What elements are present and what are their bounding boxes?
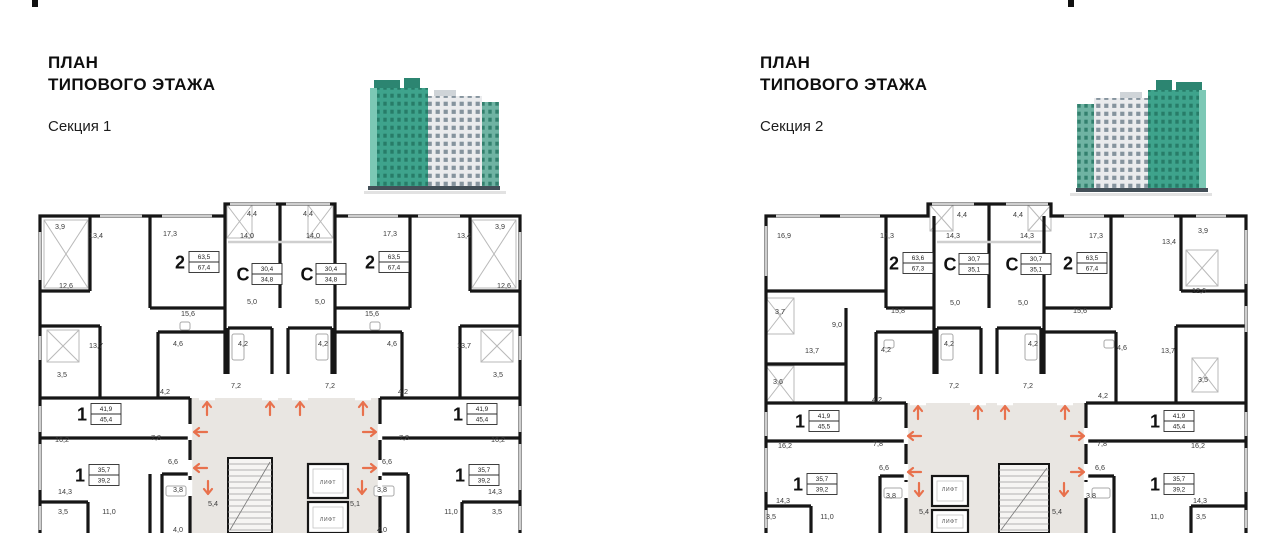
green-tower-edge <box>370 88 377 188</box>
room-area-label: 5,4 <box>919 507 929 516</box>
room-area-label: 7,2 <box>949 381 959 390</box>
room-area-label: 3,8 <box>886 491 896 500</box>
apartment-living-area: 41,9 <box>476 406 489 413</box>
corridor-core <box>190 398 380 533</box>
room-area-label: 6,6 <box>879 463 889 472</box>
room-area-label: 13,4 <box>89 231 103 240</box>
room-area-label: 13,7 <box>1161 346 1175 355</box>
apartment-total-area: 39,2 <box>1173 487 1186 494</box>
apartment-living-area: 35,7 <box>816 476 829 483</box>
room-area-label: 17,3 <box>163 229 177 238</box>
section-2-subtitle: Секция 2 <box>760 118 823 135</box>
section-1-subtitle: Секция 1 <box>48 118 111 135</box>
apartment-type: 2 <box>889 254 899 274</box>
room-area-label: 3,8 <box>377 485 387 494</box>
room-area-label: 14,3 <box>58 487 72 496</box>
room-area-label: 5,0 <box>247 297 257 306</box>
room-area-label: 3,9 <box>495 222 505 231</box>
ground-shadow <box>364 191 506 194</box>
room-area-label: 15,6 <box>365 309 379 318</box>
apartment-total-area: 39,2 <box>816 487 829 494</box>
apartment-type: С <box>237 265 250 285</box>
room-area-label: 3,5 <box>493 370 503 379</box>
room-area-label: 16,9 <box>777 231 791 240</box>
room-area-label: 15,6 <box>1073 306 1087 315</box>
room-area-label: 6,6 <box>1095 463 1105 472</box>
floor-plan-section-2: ЛИФТЛИФТ16,917,314,34,44,414,317,313,43,… <box>756 196 1256 533</box>
room-area-label: 4,2 <box>318 339 328 348</box>
room-area-label: 4,6 <box>173 339 183 348</box>
room-area-label: 3,5 <box>766 512 776 521</box>
room-area-label: 4,2 <box>1028 339 1038 348</box>
apartment-total-area: 35,1 <box>1030 267 1043 274</box>
balcony-glazing <box>766 205 1218 402</box>
section-2-title: ПЛАН ТИПОВОГО ЭТАЖА <box>760 52 927 97</box>
apartment-living-area: 30,7 <box>1030 256 1043 263</box>
apartment-living-area: 63,5 <box>1086 255 1099 262</box>
room-area-label: 7,8 <box>151 433 161 442</box>
room-area-label: 3,5 <box>58 507 68 516</box>
room-area-label: 7,2 <box>1023 381 1033 390</box>
crop-mark-right <box>1068 0 1074 7</box>
apartment-living-area: 30,4 <box>325 266 338 273</box>
apartment-badge: С30,735,1 <box>1006 254 1052 275</box>
white-tower-windows <box>1094 98 1148 190</box>
room-area-label: 6,6 <box>382 457 392 466</box>
apartment-living-area: 41,9 <box>100 406 113 413</box>
room-area-label: 12,6 <box>497 281 511 290</box>
apartment-badge: 263,667,3 <box>889 253 933 274</box>
room-area-label: 14,3 <box>488 487 502 496</box>
apartment-type: 1 <box>77 405 87 425</box>
elevator-label: ЛИФТ <box>942 519 959 525</box>
room-area-label: 13,7 <box>805 346 819 355</box>
apartment-badge: 263,567,4 <box>1063 253 1107 274</box>
apartment-badge: 141,945,4 <box>453 404 497 425</box>
teal-wing-windows <box>1077 104 1094 190</box>
room-area-label: 17,3 <box>880 231 894 240</box>
room-area-label: 13,7 <box>89 341 103 350</box>
room-area-label: 5,0 <box>315 297 325 306</box>
room-area-label: 3,6 <box>773 377 783 386</box>
apartment-total-area: 39,2 <box>98 478 111 485</box>
apartment-badge: 135,739,2 <box>455 465 499 486</box>
apartment-badge: С30,434,8 <box>237 264 283 285</box>
apartment-badge: 135,739,2 <box>1150 474 1194 495</box>
room-area-label: 5,0 <box>950 298 960 307</box>
room-area-label: 4,2 <box>1098 391 1108 400</box>
room-area-label: 4,2 <box>872 395 882 404</box>
room-area-label: 4,2 <box>881 345 891 354</box>
room-area-label: 14,0 <box>306 231 320 240</box>
room-area-label: 3,7 <box>775 307 785 316</box>
apartment-type: С <box>1006 255 1019 275</box>
apartment-badge: 141,945,4 <box>1150 411 1194 432</box>
apartment-badge: 141,945,4 <box>77 404 121 425</box>
apartment-total-area: 35,1 <box>968 267 981 274</box>
apartment-living-area: 63,6 <box>912 255 925 262</box>
green-tower-windows <box>370 88 428 188</box>
apartment-living-area: 41,9 <box>818 413 831 420</box>
room-area-label: 16,2 <box>778 441 792 450</box>
room-area-label: 5,4 <box>1052 507 1062 516</box>
apartment-badge: С30,735,1 <box>944 254 990 275</box>
apartment-living-area: 63,5 <box>198 254 211 261</box>
apartment-badge: 141,945,5 <box>795 411 839 432</box>
apartment-badge: С30,434,8 <box>301 264 347 285</box>
apartment-type: 2 <box>1063 254 1073 274</box>
staircase <box>228 458 272 533</box>
apartment-total-area: 45,4 <box>476 417 489 424</box>
apartment-total-area: 34,8 <box>261 277 274 284</box>
apartment-total-area: 34,8 <box>325 277 338 284</box>
apartment-living-area: 35,7 <box>478 467 491 474</box>
apartment-type: 1 <box>75 466 85 486</box>
room-area-label: 7,8 <box>873 439 883 448</box>
room-area-label: 4,6 <box>387 339 397 348</box>
apartment-living-area: 35,7 <box>98 467 111 474</box>
elevator-label: ЛИФТ <box>320 517 337 523</box>
room-area-label: 4,2 <box>160 387 170 396</box>
apartment-total-area: 67,4 <box>198 265 211 272</box>
room-area-label: 13,4 <box>457 231 471 240</box>
room-area-label: 11,0 <box>1150 512 1163 521</box>
apartment-type: С <box>301 265 314 285</box>
section-1-title: ПЛАН ТИПОВОГО ЭТАЖА <box>48 52 215 97</box>
room-area-label: 11,0 <box>102 507 115 516</box>
room-area-label: 14,0 <box>240 231 254 240</box>
elevator-label: ЛИФТ <box>320 480 337 486</box>
room-area-label: 7,8 <box>399 433 409 442</box>
room-area-label: 4,4 <box>1013 210 1023 219</box>
room-area-label: 9,0 <box>832 320 842 329</box>
floor-plan-section-1: ЛИФТЛИФТ3,913,417,34,414,014,04,417,313,… <box>30 196 530 533</box>
room-area-label: 4,4 <box>957 210 967 219</box>
building-render-section-1 <box>352 68 516 198</box>
apartment-badge: 263,567,4 <box>175 252 219 273</box>
room-area-label: 4,4 <box>247 209 257 218</box>
apartment-badge: 263,567,4 <box>365 252 409 273</box>
room-area-label: 4,2 <box>398 387 408 396</box>
room-area-label: 16,2 <box>55 435 69 444</box>
room-area-label: 14,3 <box>1020 231 1034 240</box>
tower-roof <box>404 78 420 88</box>
room-area-label: 14,3 <box>946 231 960 240</box>
room-area-label: 7,2 <box>325 381 335 390</box>
room-area-label: 3,5 <box>57 370 67 379</box>
room-area-label: 15,8 <box>891 306 905 315</box>
room-area-label: 3,8 <box>1086 491 1096 500</box>
room-area-label: 3,5 <box>1198 375 1208 384</box>
room-area-label: 7,2 <box>231 381 241 390</box>
apartment-total-area: 67,4 <box>388 265 401 272</box>
room-area-label: 15,6 <box>181 309 195 318</box>
room-area-label: 3,5 <box>1196 512 1206 521</box>
room-area-label: 13,4 <box>1162 237 1176 246</box>
room-area-label: 17,3 <box>1089 231 1103 240</box>
apartment-badge: 135,739,2 <box>75 465 119 486</box>
apartment-total-area: 67,4 <box>1086 266 1099 273</box>
white-tower-windows <box>428 96 482 188</box>
room-area-label: 14,3 <box>776 496 790 505</box>
room-area-label: 3,9 <box>55 222 65 231</box>
room-area-label: 4,0 <box>173 525 183 533</box>
room-area-label: 4,0 <box>377 525 387 533</box>
apartment-living-area: 30,7 <box>968 256 981 263</box>
room-area-label: 5,4 <box>208 499 218 508</box>
apartment-total-area: 67,3 <box>912 266 925 273</box>
green-tower-edge <box>1199 90 1206 190</box>
room-area-label: 5,0 <box>1018 298 1028 307</box>
room-area-label: 14,3 <box>1193 496 1207 505</box>
green-tower-windows <box>1148 90 1206 190</box>
building-render-section-2 <box>1060 70 1224 200</box>
apartment-living-area: 30,4 <box>261 266 274 273</box>
apartment-living-area: 63,5 <box>388 254 401 261</box>
apartment-type: 2 <box>365 253 375 273</box>
room-area-label: 7,8 <box>1097 439 1107 448</box>
apartment-total-area: 45,5 <box>818 424 831 431</box>
apartment-type: 1 <box>793 475 803 495</box>
apartment-total-area: 45,4 <box>100 417 113 424</box>
room-area-label: 11,0 <box>444 507 457 516</box>
apartment-type: 1 <box>1150 412 1160 432</box>
room-area-label: 3,8 <box>173 485 183 494</box>
apartment-type: 1 <box>795 412 805 432</box>
apartment-living-area: 35,7 <box>1173 476 1186 483</box>
room-area-label: 11,0 <box>820 512 833 521</box>
floor-plan-page: ПЛАН ТИПОВОГО ЭТАЖА Секция 1 ЛИФТЛИФТ3,9… <box>0 0 1280 533</box>
apartment-type: 1 <box>455 466 465 486</box>
room-area-label: 4,4 <box>303 209 313 218</box>
room-area-label: 16,2 <box>491 435 505 444</box>
room-area-label: 6,6 <box>168 457 178 466</box>
room-area-label: 3,5 <box>492 507 502 516</box>
room-area-label: 12,6 <box>1192 286 1206 295</box>
building-base <box>368 186 500 190</box>
apartment-total-area: 45,4 <box>1173 424 1186 431</box>
apartment-type: 1 <box>453 405 463 425</box>
building-base <box>1076 188 1208 192</box>
apartment-badge: 135,739,2 <box>793 474 837 495</box>
room-area-label: 4,6 <box>1117 343 1127 352</box>
room-area-label: 16,2 <box>1191 441 1205 450</box>
apartment-type: 1 <box>1150 475 1160 495</box>
elevator-label: ЛИФТ <box>942 487 959 493</box>
room-area-label: 3,9 <box>1198 226 1208 235</box>
room-area-label: 12,6 <box>59 281 73 290</box>
tower-roof <box>1156 80 1172 90</box>
room-area-label: 17,3 <box>383 229 397 238</box>
apartment-living-area: 41,9 <box>1173 413 1186 420</box>
apartment-total-area: 39,2 <box>478 478 491 485</box>
room-area-label: 13,7 <box>457 341 471 350</box>
room-area-label: 4,2 <box>238 339 248 348</box>
teal-wing-windows <box>482 102 499 188</box>
apartment-type: С <box>944 255 957 275</box>
staircase <box>999 464 1049 533</box>
room-area-label: 4,2 <box>944 339 954 348</box>
crop-mark-left <box>32 0 38 7</box>
room-area-label: 5,1 <box>350 499 360 508</box>
apartment-type: 2 <box>175 253 185 273</box>
